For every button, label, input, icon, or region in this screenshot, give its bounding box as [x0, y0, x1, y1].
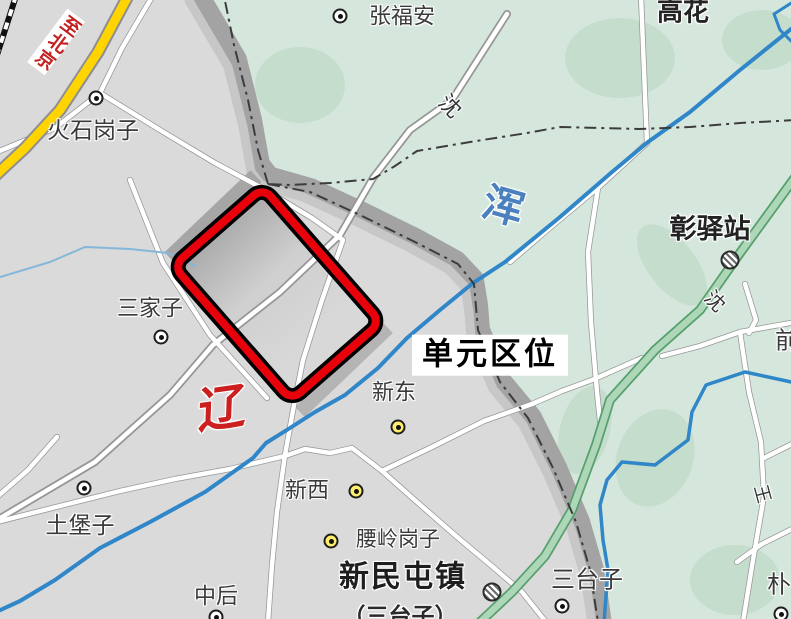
station-symbol-zhangyizhan [721, 251, 740, 270]
label-santaizi-paren: （三台子） [343, 604, 458, 619]
label-yaolinggangzi: 腰岭岗子 [356, 529, 440, 551]
label-zhangyizhan: 彰驿站 [670, 215, 751, 243]
label-xindong: 新东 [372, 380, 416, 403]
label-shen-road-east: 沈 [700, 288, 729, 317]
label-hun-river: 浑 [477, 181, 528, 234]
label-xinmintunzhen: 新民屯镇 [339, 561, 467, 593]
town-symbol-huoshigangzi [89, 91, 104, 106]
town-symbol-xindong [391, 420, 406, 435]
town-symbol-zhonghou [209, 610, 224, 619]
label-unit-location: 单元区位 [412, 335, 568, 376]
town-symbol-zhangfuan [333, 9, 348, 24]
label-huoshigangzi: 火石岗子 [47, 118, 139, 142]
label-gaohua: 高花 [657, 0, 709, 26]
label-shen-road-north: 沈 [434, 90, 466, 122]
label-to-beijing: 至北京 [27, 9, 85, 76]
map-canvas: 至北京火石岗子张福安高花沈浑彰驿站三家子单元区位辽新东新西腰岭岗子新民屯镇（三台… [0, 0, 791, 619]
label-xinxi: 新西 [285, 478, 329, 501]
station-symbol-xinmintunzhen [483, 583, 502, 602]
label-zhonghou: 中后 [194, 584, 238, 607]
town-symbol-santaizi [555, 599, 570, 614]
label-pu: 朴 [767, 572, 791, 597]
label-santaizi: 三台子 [551, 567, 623, 592]
label-wang-road: 王 [751, 483, 774, 505]
town-symbol-yaolinggangzi [324, 534, 339, 549]
map-label-layer: 至北京火石岗子张福安高花沈浑彰驿站三家子单元区位辽新东新西腰岭岗子新民屯镇（三台… [0, 0, 791, 619]
town-symbol-pu [774, 607, 789, 619]
label-tubaozi: 土堡子 [46, 513, 115, 537]
label-liao-river: 辽 [197, 381, 246, 439]
town-symbol-xinxi [349, 484, 364, 499]
label-zhangfuan: 张福安 [369, 4, 435, 27]
label-sanjiazi: 三家子 [117, 296, 183, 319]
town-symbol-tubaozi [77, 481, 92, 496]
town-symbol-sanjiazi [154, 330, 169, 345]
label-qian: 前 [775, 328, 791, 353]
